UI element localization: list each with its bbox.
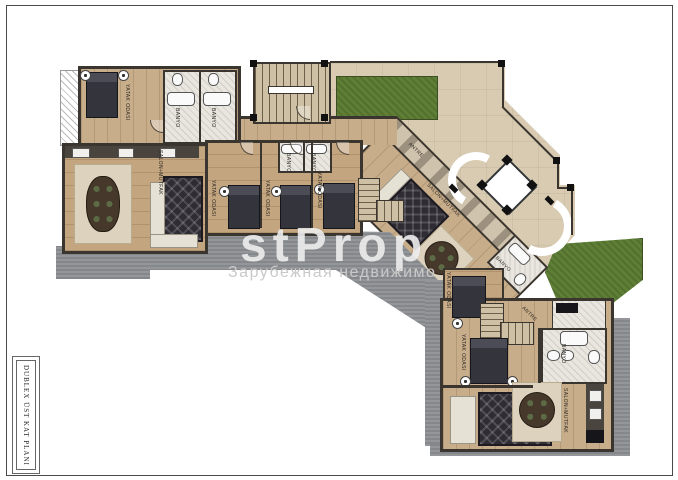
wardrobe — [556, 303, 578, 313]
nightstand — [80, 70, 91, 81]
room-label: SALON+MUTFAK — [562, 388, 567, 433]
toilet — [172, 73, 183, 86]
room-label: BANYO — [210, 108, 215, 128]
room-label: YATAK ODASI — [124, 84, 129, 121]
title-block-inner: DUBLEX ÜST KAT PLANI — [16, 360, 36, 470]
wall-divider — [260, 143, 262, 228]
sink — [547, 350, 560, 361]
wall-divider — [538, 328, 541, 383]
garden-top — [336, 76, 438, 120]
kitchen-sink — [72, 148, 90, 158]
column — [553, 157, 560, 164]
room-label: YATAK ODASI — [460, 334, 465, 371]
dining-table-oval — [86, 176, 120, 232]
stove — [118, 148, 134, 158]
nightstand — [219, 186, 230, 197]
room-label: YATAK ODASI — [264, 180, 269, 217]
nightstand — [452, 318, 463, 329]
sofa — [450, 396, 476, 444]
terrace-wall — [557, 160, 559, 189]
column — [567, 184, 574, 191]
room-label: SALON+MUTFAK — [157, 150, 162, 195]
column — [250, 60, 257, 67]
plan-title: DUBLEX ÜST KAT PLANI — [22, 365, 30, 466]
column — [321, 114, 328, 121]
nightstand — [271, 186, 282, 197]
column — [321, 60, 328, 67]
title-block: DUBLEX ÜST KAT PLANI — [12, 356, 40, 474]
sofa-corner — [150, 234, 198, 248]
room-label: BANYO — [285, 153, 290, 173]
room-label: YATAK ODASI — [210, 180, 215, 217]
room-label: BANYO — [174, 108, 179, 128]
room-label: BANYO — [310, 153, 315, 173]
column — [250, 114, 257, 121]
nightstand — [118, 70, 129, 81]
terrace-wall — [571, 187, 573, 235]
toilet — [208, 73, 219, 86]
wall-divider — [443, 385, 533, 388]
room-label: BANYO — [560, 344, 565, 364]
balcony-hatched — [60, 70, 80, 146]
terrace-wall — [330, 61, 504, 63]
stair-handrail — [268, 86, 314, 94]
floor-plan-sheet: DUBLEX ÜST KAT PLANI ANTRE BANYO SALON+M… — [0, 0, 678, 480]
bathtub — [167, 92, 195, 106]
terrace-wall — [502, 61, 504, 108]
kitchen-sink — [589, 390, 602, 402]
bathtub — [203, 92, 231, 106]
bed — [86, 72, 118, 118]
watermark-tagline: Зарубежная недвижимо — [228, 264, 436, 282]
fridge — [586, 430, 604, 443]
room-label: YATAK ODASI — [316, 172, 321, 209]
toilet — [588, 350, 600, 364]
stove — [589, 408, 602, 420]
room-label: YATAK ODASI — [445, 272, 450, 309]
dining-table-round — [519, 392, 555, 428]
rug — [163, 176, 203, 242]
bed — [470, 338, 508, 384]
column — [498, 60, 505, 67]
